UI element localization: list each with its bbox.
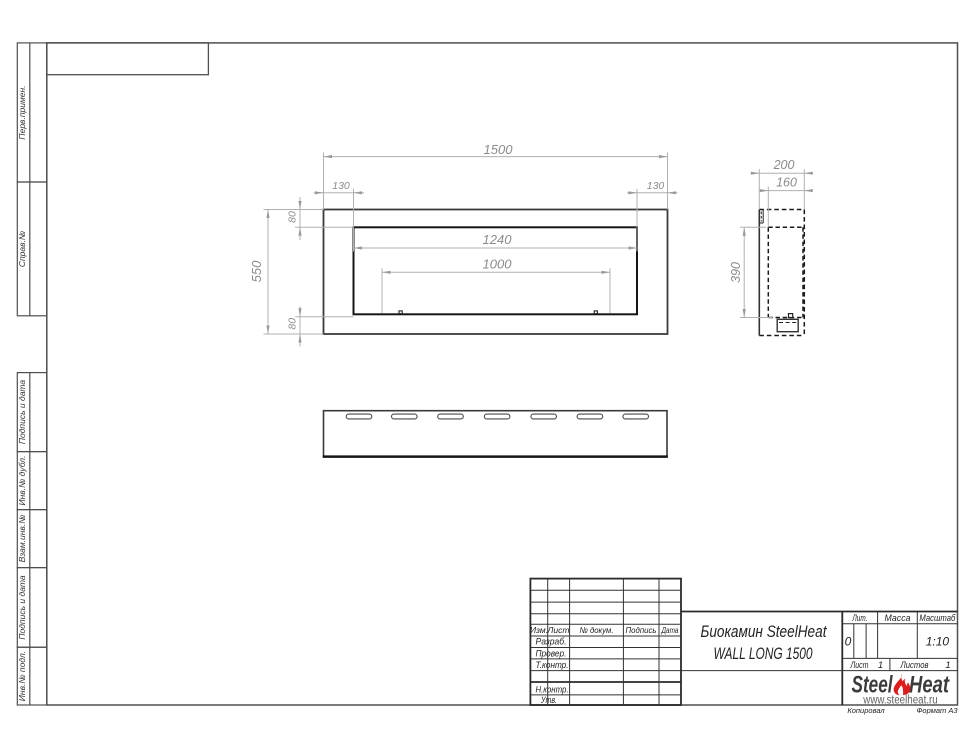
svg-text:Масса: Масса [885,613,911,624]
svg-text:Н.контр.: Н.контр. [536,684,569,695]
svg-text:80: 80 [287,318,299,330]
svg-text:Листов: Листов [900,660,929,671]
svg-text:Перв.примен.: Перв.примен. [17,85,27,139]
svg-text:200: 200 [773,158,795,172]
svg-text:Инв.№ дубл.: Инв.№ дубл. [17,456,27,506]
svg-text:Справ.№: Справ.№ [17,231,27,267]
svg-text:Подпись: Подпись [626,625,657,635]
svg-text:160: 160 [776,176,797,190]
svg-text:Подпись и дата: Подпись и дата [17,575,27,640]
svg-text:Изм.: Изм. [530,625,548,635]
svg-text:Дата: Дата [661,625,679,635]
svg-text:1500: 1500 [484,142,514,157]
svg-text:0: 0 [845,635,852,649]
svg-text:Лист: Лист [547,625,570,635]
svg-text:Масштаб: Масштаб [919,613,956,624]
svg-text:Формат А3: Формат А3 [916,706,958,715]
svg-text:1000: 1000 [483,256,513,271]
svg-text:1240: 1240 [483,232,513,247]
svg-text:1:10: 1:10 [926,635,950,649]
svg-text:550: 550 [249,260,264,282]
svg-text:Биокамин SteelHeat: Биокамин SteelHeat [701,622,828,641]
svg-text:WALL LONG 1500: WALL LONG 1500 [714,644,813,663]
svg-text:Подпись и дата: Подпись и дата [17,380,27,445]
svg-text:1: 1 [878,660,883,671]
svg-text:80: 80 [287,211,299,223]
svg-text:Провер.: Провер. [536,648,567,659]
svg-text:1: 1 [945,660,950,671]
svg-text:Лит.: Лит. [852,613,868,624]
svg-text:Утв.: Утв. [540,695,557,706]
svg-text:Лист: Лист [850,660,869,671]
svg-text:130: 130 [332,180,350,192]
svg-text:130: 130 [647,180,665,192]
svg-text:Взам.инв.№: Взам.инв.№ [17,515,27,563]
svg-text:Т.контр.: Т.контр. [536,660,569,671]
svg-text:Разраб.: Разраб. [536,637,567,648]
svg-text:390: 390 [729,262,743,283]
svg-text:Копировал: Копировал [847,706,885,715]
svg-text:www.steelheat.ru: www.steelheat.ru [862,695,937,707]
svg-text:Инв.№ подл.: Инв.№ подл. [17,651,27,701]
svg-text:№ докум.: № докум. [580,625,614,635]
